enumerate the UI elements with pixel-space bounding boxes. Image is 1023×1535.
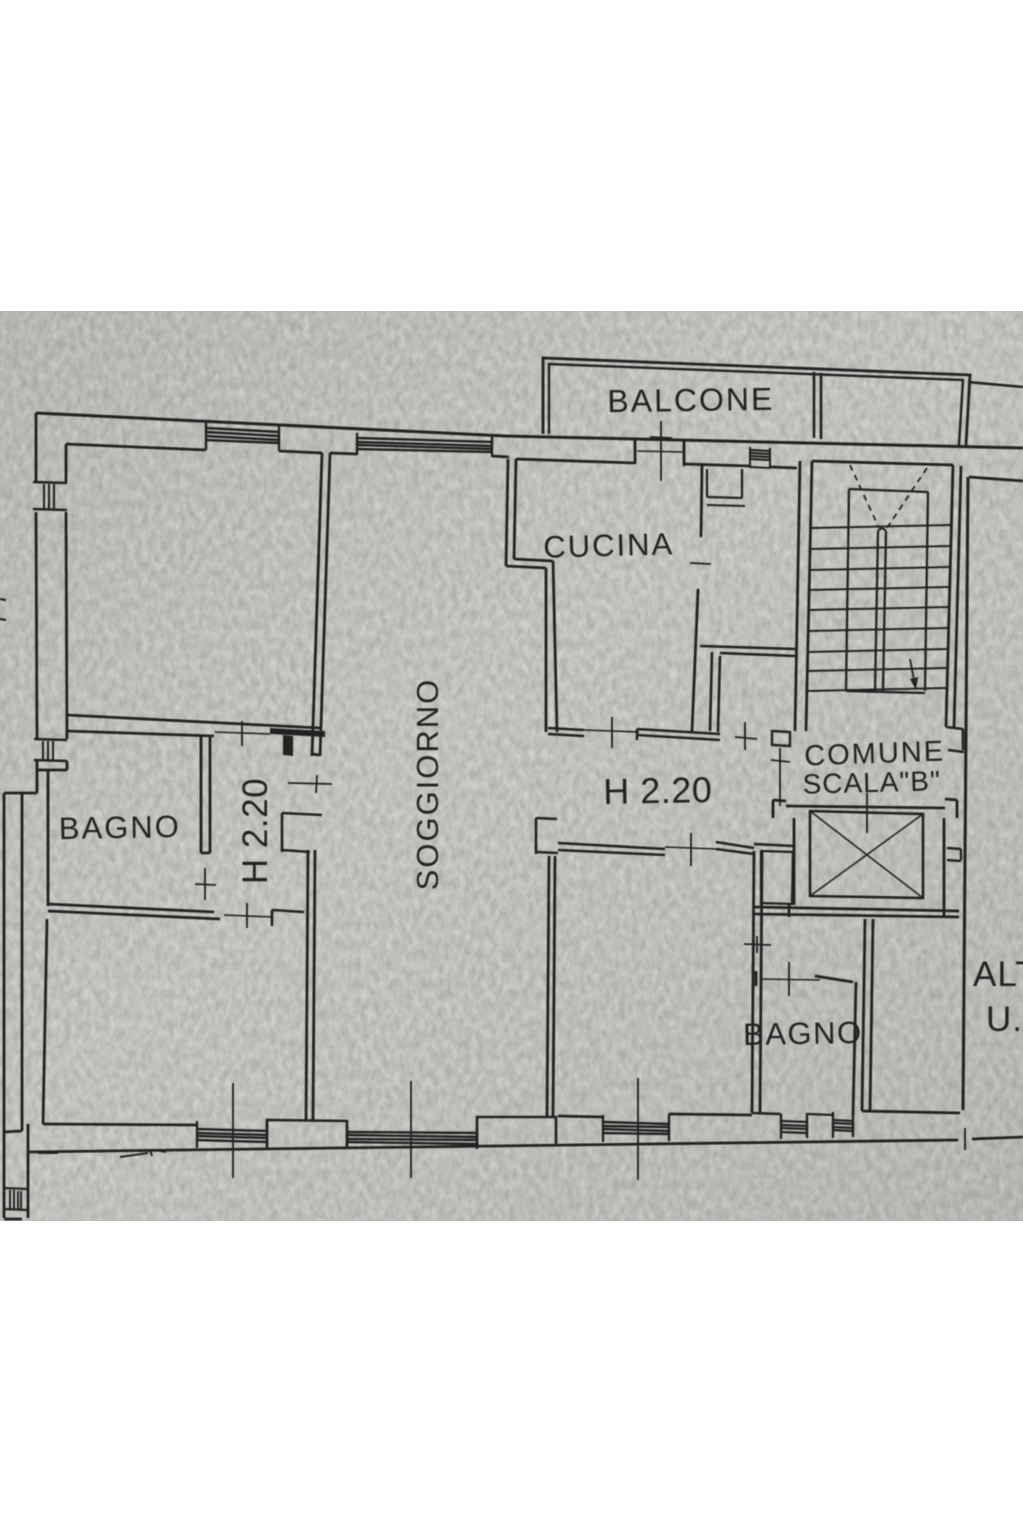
svg-text:CUCINA: CUCINA	[543, 526, 675, 564]
svg-text:BALCONE: BALCONE	[607, 381, 774, 419]
svg-text:H 2.20: H 2.20	[603, 769, 713, 812]
svg-text:BAGNO: BAGNO	[59, 809, 182, 846]
svg-text:SOGGIORNO: SOGGIORNO	[410, 678, 445, 891]
svg-text:SCALA"B": SCALA"B"	[802, 765, 941, 800]
svg-text:BAGNO: BAGNO	[743, 1015, 863, 1052]
svg-text:ALTR: ALTR	[973, 955, 1023, 994]
svg-text:H 2.20: H 2.20	[236, 778, 275, 884]
svg-text:U.I: U.I	[986, 1000, 1023, 1039]
